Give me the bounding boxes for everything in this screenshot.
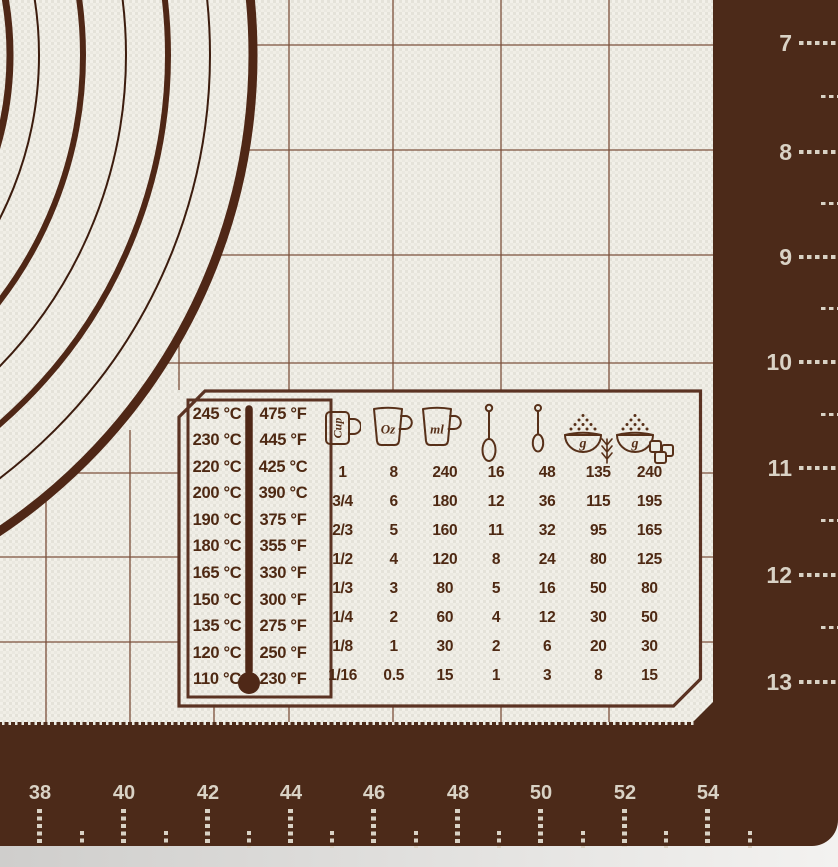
bottom-ruler-label: 54 bbox=[686, 783, 730, 803]
conv-cell: 2 bbox=[368, 603, 419, 632]
temp-fahrenheit: 250 °F bbox=[252, 644, 314, 663]
conv-cell: 1 bbox=[368, 632, 419, 661]
ml-jug-icon: ml bbox=[415, 400, 464, 466]
temp-celsius: 180 °C bbox=[186, 537, 248, 556]
ruler-tick-minor bbox=[821, 413, 838, 416]
conv-cell: 48 bbox=[522, 459, 573, 488]
conv-cell: 1 bbox=[470, 661, 521, 690]
temp-row: 110 °C230 °F bbox=[186, 666, 324, 693]
conv-cell: 80 bbox=[624, 575, 675, 604]
conv-cell: 1/16 bbox=[317, 661, 368, 690]
temp-fahrenheit: 355 °F bbox=[252, 537, 314, 556]
right-ruler-label: 12 bbox=[750, 564, 792, 587]
conv-cell: 165 bbox=[624, 517, 675, 546]
ruler-tick-major bbox=[799, 255, 838, 259]
ruler-tick-minor bbox=[497, 831, 501, 848]
conv-cell: 6 bbox=[368, 488, 419, 517]
conv-cell: 125 bbox=[624, 546, 675, 575]
conv-cell: 1/3 bbox=[317, 575, 368, 604]
bottom-ruler-label: 52 bbox=[603, 783, 647, 803]
conv-cell: 8 bbox=[368, 459, 419, 488]
temp-row: 200 °C390 °C bbox=[186, 481, 324, 508]
tablespoon-icon bbox=[465, 400, 514, 466]
conv-cell: 1/8 bbox=[317, 632, 368, 661]
conv-cell: 30 bbox=[573, 603, 624, 632]
conv-cell: 240 bbox=[419, 459, 470, 488]
temp-row: 135 °C275 °F bbox=[186, 613, 324, 640]
conversion-header: Cup Oz ml bbox=[317, 400, 675, 464]
conv-cell: 12 bbox=[470, 488, 521, 517]
ruler-tick-minor bbox=[247, 831, 251, 848]
right-ruler-label: 9 bbox=[750, 246, 792, 269]
bottom-ruler-label: 44 bbox=[269, 783, 313, 803]
ruler-tick-minor bbox=[330, 831, 334, 848]
conv-cell: 1 bbox=[317, 459, 368, 488]
temp-celsius: 245 °C bbox=[186, 405, 248, 424]
conv-cell: 15 bbox=[419, 661, 470, 690]
conv-cell: 80 bbox=[573, 546, 624, 575]
temp-row: 190 °C375 °F bbox=[186, 507, 324, 534]
ruler-tick-major bbox=[371, 809, 376, 847]
ruler-tick-major bbox=[121, 809, 126, 847]
conv-cell: 135 bbox=[573, 459, 624, 488]
bottom-ruler-label: 46 bbox=[352, 783, 396, 803]
bottom-ruler-label: 38 bbox=[18, 783, 62, 803]
conv-cell: 3/4 bbox=[317, 488, 368, 517]
svg-text:ml: ml bbox=[430, 422, 444, 437]
flour-grams-icon: g bbox=[563, 400, 615, 466]
ruler-tick-major bbox=[799, 360, 838, 364]
conv-cell: 60 bbox=[419, 603, 470, 632]
temp-row: 180 °C355 °F bbox=[186, 534, 324, 561]
ruler-tick-minor bbox=[821, 519, 838, 522]
baking-mat-photo: 245 °C475 °F 230 °C445 °F 220 °C425 °C 2… bbox=[0, 0, 838, 867]
ruler-tick-major bbox=[799, 573, 838, 577]
ruler-tick-major bbox=[455, 809, 460, 847]
ruler-tick-major bbox=[538, 809, 543, 847]
temp-row: 220 °C425 °C bbox=[186, 454, 324, 481]
right-ruler-label: 10 bbox=[750, 351, 792, 374]
conv-cell: 180 bbox=[419, 488, 470, 517]
temp-fahrenheit: 445 °F bbox=[252, 431, 314, 450]
ruler-tick-major bbox=[705, 809, 710, 847]
conv-cell: 12 bbox=[522, 603, 573, 632]
temp-celsius: 220 °C bbox=[186, 458, 248, 477]
temp-row: 230 °C445 °F bbox=[186, 428, 324, 455]
temp-celsius: 150 °C bbox=[186, 591, 248, 610]
conv-cell: 3 bbox=[522, 661, 573, 690]
right-ruler-label: 11 bbox=[750, 457, 792, 480]
bottom-ruler-label: 48 bbox=[436, 783, 480, 803]
conv-cell: 16 bbox=[522, 575, 573, 604]
conv-cell: 50 bbox=[573, 575, 624, 604]
conv-cell: 32 bbox=[522, 517, 573, 546]
conv-cell: 120 bbox=[419, 546, 470, 575]
ruler-tick-minor bbox=[821, 307, 838, 310]
svg-text:Oz: Oz bbox=[381, 422, 396, 437]
cup-icon: Cup bbox=[317, 400, 366, 466]
bottom-ruler-label: 42 bbox=[186, 783, 230, 803]
svg-text:Cup: Cup bbox=[330, 418, 344, 439]
conv-cell: 6 bbox=[522, 632, 573, 661]
conv-cell: 195 bbox=[624, 488, 675, 517]
ruler-tick-major bbox=[799, 466, 838, 470]
sugar-grams-icon: g bbox=[615, 400, 675, 466]
ruler-tick-major bbox=[799, 41, 838, 45]
temp-fahrenheit: 425 °C bbox=[252, 458, 314, 477]
conv-cell: 1/4 bbox=[317, 603, 368, 632]
temp-row: 150 °C300 °F bbox=[186, 587, 324, 614]
temp-fahrenheit: 330 °F bbox=[252, 564, 314, 583]
conversion-table: 182401648135240 3/461801236115195 2/3516… bbox=[317, 459, 675, 690]
ruler-tick-minor bbox=[821, 95, 838, 98]
temp-celsius: 165 °C bbox=[186, 564, 248, 583]
ruler-tick-minor bbox=[80, 831, 84, 848]
conv-cell: 20 bbox=[573, 632, 624, 661]
ruler-tick-minor bbox=[748, 831, 752, 848]
teaspoon-icon bbox=[514, 400, 563, 466]
temperature-table: 245 °C475 °F 230 °C445 °F 220 °C425 °C 2… bbox=[186, 401, 324, 693]
conv-cell: 15 bbox=[624, 661, 675, 690]
temp-celsius: 110 °C bbox=[186, 670, 248, 689]
conv-cell: 2 bbox=[470, 632, 521, 661]
temp-fahrenheit: 300 °F bbox=[252, 591, 314, 610]
ruler-tick-minor bbox=[164, 831, 168, 848]
temp-fahrenheit: 275 °F bbox=[252, 617, 314, 636]
temp-fahrenheit: 375 °F bbox=[252, 511, 314, 530]
conv-cell: 36 bbox=[522, 488, 573, 517]
ruler-tick-minor bbox=[664, 831, 668, 848]
conv-cell: 24 bbox=[522, 546, 573, 575]
conv-cell: 8 bbox=[470, 546, 521, 575]
svg-text:g: g bbox=[579, 437, 587, 452]
conv-cell: 5 bbox=[368, 517, 419, 546]
conv-cell: 16 bbox=[470, 459, 521, 488]
conv-cell: 160 bbox=[419, 517, 470, 546]
conv-cell: 11 bbox=[470, 517, 521, 546]
conv-cell: 1/2 bbox=[317, 546, 368, 575]
bottom-ruler-label: 50 bbox=[519, 783, 563, 803]
ruler-tick-major bbox=[37, 809, 42, 847]
ruler-tick-major bbox=[799, 150, 838, 154]
temp-fahrenheit: 475 °F bbox=[252, 405, 314, 424]
conv-cell: 30 bbox=[624, 632, 675, 661]
temp-row: 245 °C475 °F bbox=[186, 401, 324, 428]
ruler-tick-minor bbox=[821, 626, 838, 629]
conv-cell: 5 bbox=[470, 575, 521, 604]
right-ruler-label: 7 bbox=[750, 32, 792, 55]
ruler-tick-minor bbox=[581, 831, 585, 848]
temp-celsius: 200 °C bbox=[186, 484, 248, 503]
right-ruler-label: 8 bbox=[750, 141, 792, 164]
temp-celsius: 120 °C bbox=[186, 644, 248, 663]
conv-cell: 50 bbox=[624, 603, 675, 632]
ruler-tick-major bbox=[622, 809, 627, 847]
ruler-tick-minor bbox=[821, 202, 838, 205]
conv-cell: 80 bbox=[419, 575, 470, 604]
temp-celsius: 230 °C bbox=[186, 431, 248, 450]
temp-row: 120 °C250 °F bbox=[186, 640, 324, 667]
oz-jug-icon: Oz bbox=[366, 400, 415, 466]
ruler-tick-minor bbox=[414, 831, 418, 848]
conv-cell: 4 bbox=[470, 603, 521, 632]
temp-fahrenheit: 230 °F bbox=[252, 670, 314, 689]
conv-cell: 115 bbox=[573, 488, 624, 517]
temp-fahrenheit: 390 °C bbox=[252, 484, 314, 503]
temp-celsius: 135 °C bbox=[186, 617, 248, 636]
svg-text:g: g bbox=[631, 437, 639, 452]
conv-cell: 8 bbox=[573, 661, 624, 690]
ruler-tick-major bbox=[799, 680, 838, 684]
ruler-tick-major bbox=[288, 809, 293, 847]
temp-row: 165 °C330 °F bbox=[186, 560, 324, 587]
conv-cell: 2/3 bbox=[317, 517, 368, 546]
conv-cell: 240 bbox=[624, 459, 675, 488]
conv-cell: 95 bbox=[573, 517, 624, 546]
temp-celsius: 190 °C bbox=[186, 511, 248, 530]
conv-cell: 4 bbox=[368, 546, 419, 575]
right-ruler-label: 13 bbox=[750, 671, 792, 694]
ruler-tick-major bbox=[205, 809, 210, 847]
bottom-ruler-label: 40 bbox=[102, 783, 146, 803]
conv-cell: 3 bbox=[368, 575, 419, 604]
conv-cell: 0.5 bbox=[368, 661, 419, 690]
conv-cell: 30 bbox=[419, 632, 470, 661]
